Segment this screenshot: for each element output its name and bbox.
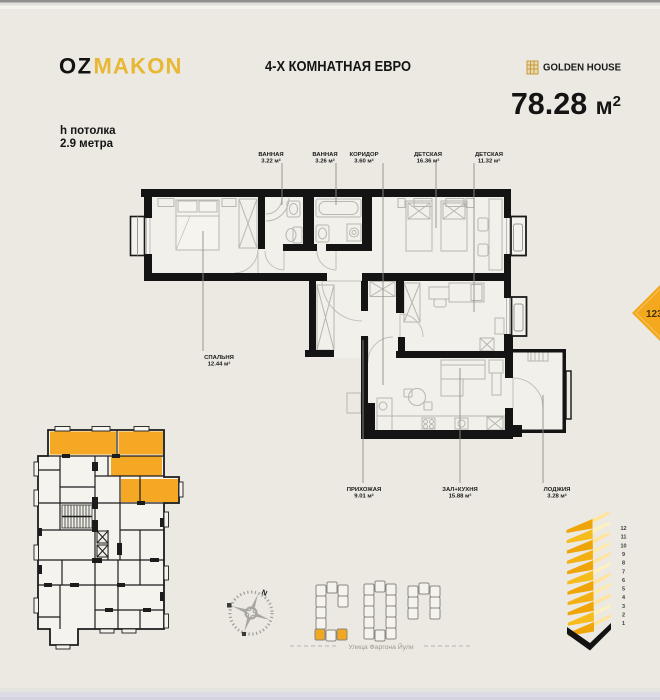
svg-text:9.01 м²: 9.01 м² <box>354 493 373 500</box>
svg-text:4-Х КОМНАТНАЯ ЕВРО: 4-Х КОМНАТНАЯ ЕВРО <box>265 58 411 75</box>
svg-text:ЗАЛ+КУХНЯ: ЗАЛ+КУХНЯ <box>442 487 477 493</box>
svg-text:1: 1 <box>622 621 625 627</box>
svg-text:78.28 м2: 78.28 м2 <box>511 87 621 121</box>
svg-text:5: 5 <box>622 587 625 593</box>
svg-text:КОРИДОР: КОРИДОР <box>349 152 378 158</box>
svg-text:3.28 м²: 3.28 м² <box>547 493 566 500</box>
svg-text:3.60 м²: 3.60 м² <box>354 158 373 165</box>
svg-text:GOLDEN HOUSE: GOLDEN HOUSE <box>543 63 621 74</box>
svg-text:3.22 м²: 3.22 м² <box>261 158 280 165</box>
svg-text:10: 10 <box>620 543 626 549</box>
svg-text:11.32 м²: 11.32 м² <box>478 158 500 165</box>
svg-text:MAKON: MAKON <box>94 54 183 79</box>
svg-text:2.9 метра: 2.9 метра <box>60 138 114 150</box>
svg-text:ПРИХОЖАЯ: ПРИХОЖАЯ <box>347 487 382 493</box>
svg-text:ВАННАЯ: ВАННАЯ <box>312 152 337 158</box>
svg-text:СПАЛЬНЯ: СПАЛЬНЯ <box>204 355 234 361</box>
svg-text:h потолка: h потолка <box>60 125 116 137</box>
svg-text:ДЕТСКАЯ: ДЕТСКАЯ <box>475 152 503 158</box>
svg-text:3: 3 <box>622 604 625 610</box>
svg-text:OZ: OZ <box>59 54 93 79</box>
svg-text:12.44 м²: 12.44 м² <box>208 361 231 368</box>
svg-text:9: 9 <box>622 552 625 558</box>
svg-text:6: 6 <box>622 578 625 584</box>
svg-text:123: 123 <box>646 309 660 320</box>
svg-text:ЛОДЖИЯ: ЛОДЖИЯ <box>544 487 571 493</box>
svg-text:16.36 м²: 16.36 м² <box>417 158 440 165</box>
svg-text:ВАННАЯ: ВАННАЯ <box>258 152 283 158</box>
svg-text:11: 11 <box>621 535 627 541</box>
svg-text:3.26 м²: 3.26 м² <box>315 158 334 165</box>
svg-text:8: 8 <box>622 561 625 567</box>
svg-text:7: 7 <box>622 569 625 575</box>
svg-text:Улица Фаргона Йули: Улица Фаргона Йули <box>348 642 414 651</box>
svg-text:ДЕТСКАЯ: ДЕТСКАЯ <box>414 152 442 158</box>
svg-text:15.88 м²: 15.88 м² <box>449 493 472 500</box>
svg-text:2: 2 <box>622 613 625 619</box>
svg-text:12: 12 <box>620 526 626 532</box>
